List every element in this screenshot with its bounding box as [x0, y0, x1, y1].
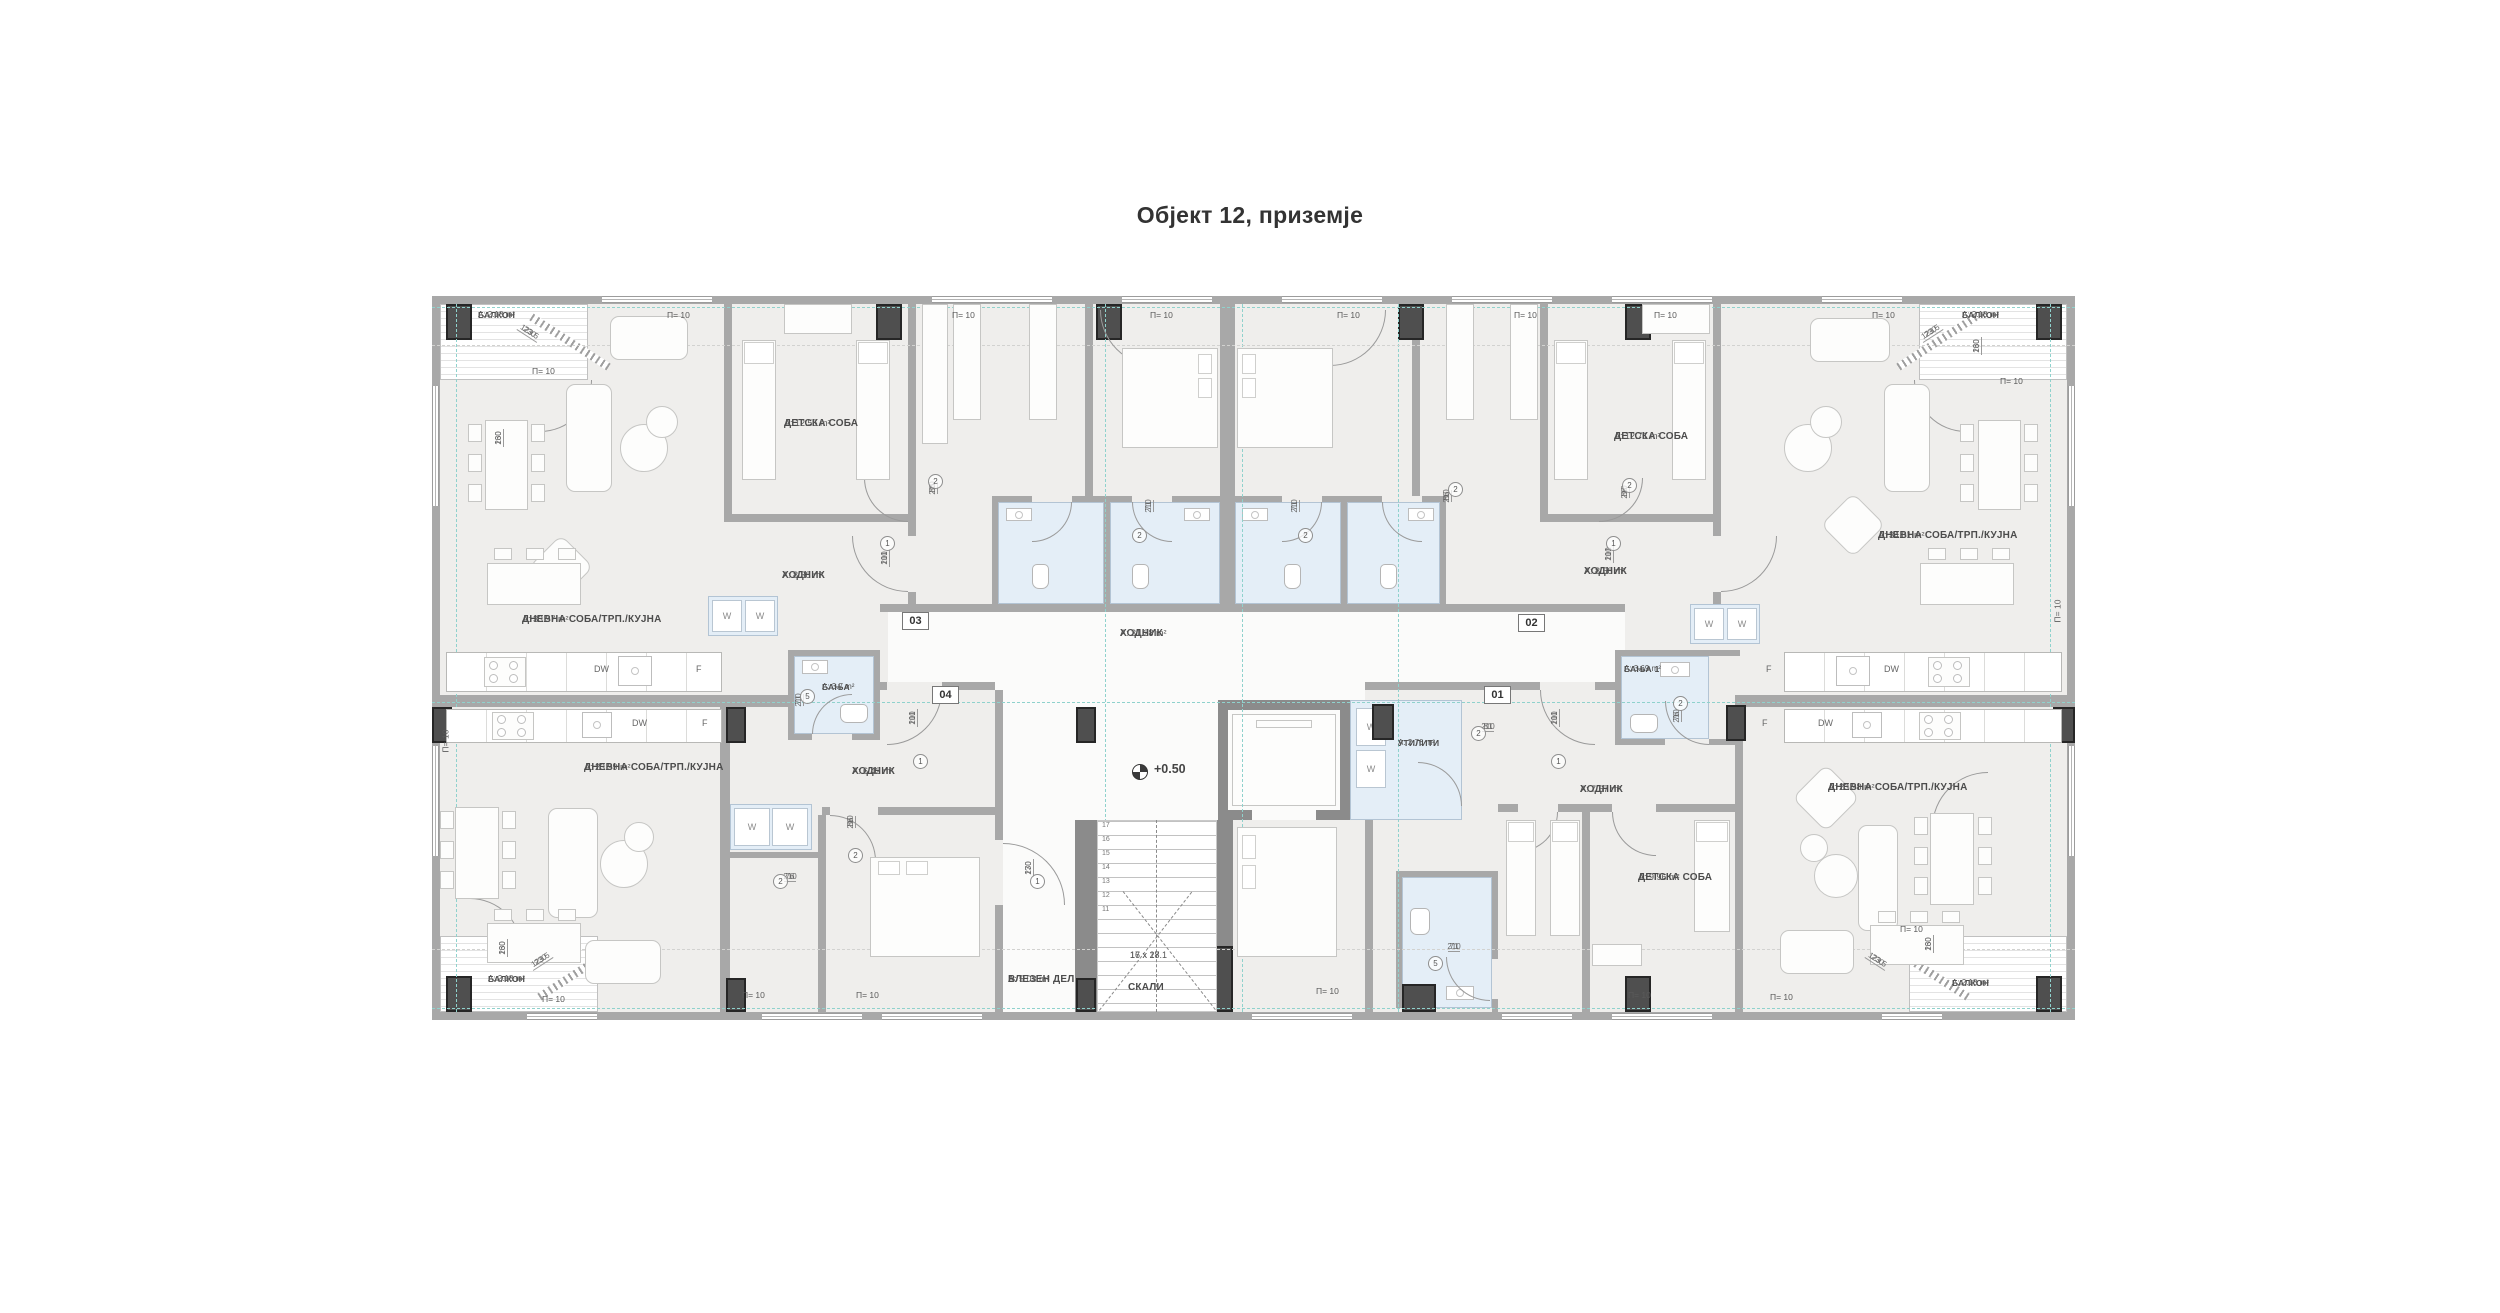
toilet: [1032, 564, 1049, 589]
unit-box-03: 03: [902, 612, 929, 630]
pillow: [1696, 822, 1728, 842]
wall: [1540, 514, 1721, 522]
stool: [1942, 911, 1960, 923]
stair-number: 17: [1102, 822, 1110, 829]
stove: [492, 712, 534, 740]
chair: [531, 484, 545, 502]
lounge-chair: [1792, 764, 1860, 832]
chair: [468, 424, 482, 442]
stool: [494, 909, 512, 921]
elevator-shaft-wall: [1316, 810, 1350, 820]
parapet-label: П= 10: [667, 310, 690, 320]
stair-number: 13: [1102, 878, 1110, 885]
window: [432, 386, 439, 506]
door-tag-5: 5: [800, 689, 815, 704]
stove: [1928, 657, 1970, 687]
sink: [802, 660, 828, 674]
room-label-stairs: СКАЛИ: [1128, 982, 1164, 993]
pillow: [1556, 342, 1586, 364]
door-arc: [1540, 690, 1595, 745]
kitchen-sink: [1836, 656, 1870, 686]
armchair: [1814, 854, 1858, 898]
ottoman: [1800, 834, 1828, 862]
column: [876, 304, 902, 340]
room-area: А: 3.7 m²: [822, 682, 854, 692]
room-area: А: 6.42 m²: [852, 766, 894, 777]
door-tag-5: 5: [1428, 956, 1443, 971]
chair: [1960, 424, 1974, 442]
room-area: А: 3.69 m²: [1624, 664, 1661, 674]
burner-icon: [1944, 728, 1953, 737]
column: [2036, 304, 2062, 340]
ottoman: [624, 822, 654, 852]
chair: [468, 484, 482, 502]
door-arc: [1612, 812, 1656, 856]
pillow: [1242, 354, 1256, 374]
room-area: А: 2.18 m²: [1952, 978, 1989, 988]
bed: [1510, 304, 1538, 420]
toilet: [1284, 564, 1301, 589]
kitchen-island: [487, 563, 581, 605]
column: [446, 304, 472, 340]
parapet-label: П= 10: [1316, 986, 1339, 996]
axis-line: [432, 1008, 2075, 1009]
stool: [526, 548, 544, 560]
washer: W: [734, 808, 770, 846]
washer: W: [1694, 608, 1724, 640]
kitchen-sink: [582, 712, 612, 738]
door-tag-2: 2: [1298, 528, 1313, 543]
bed: [953, 304, 981, 420]
main-corridor-floor: [888, 612, 1625, 682]
wall: [908, 304, 916, 536]
stair-number: 11: [1102, 906, 1109, 913]
sofa: [610, 316, 688, 360]
room-area: А: 33.97 m²: [522, 614, 569, 625]
floor-plan: W W W W W W W W: [432, 296, 2075, 1020]
pillow: [1198, 378, 1212, 398]
window: [762, 1013, 862, 1020]
fridge-label: F: [702, 718, 708, 728]
lounge-chair: [1820, 492, 1885, 557]
door-tag-2: 2: [1673, 696, 1688, 711]
wall: [1740, 695, 2075, 707]
column: [1076, 978, 1096, 1012]
sink: [1660, 662, 1690, 677]
chair: [1960, 454, 1974, 472]
room-area: А: 8.58 m²: [1584, 566, 1626, 577]
parapet-label: П= 10: [1150, 310, 1173, 320]
toilet: [1132, 564, 1149, 589]
window: [1282, 296, 1382, 303]
parapet-label: П= 10: [542, 994, 565, 1004]
sofa: [548, 808, 598, 918]
stair-number: 16: [1102, 836, 1110, 843]
parapet-label: П= 10: [440, 730, 450, 753]
wall: [1492, 999, 1498, 1012]
bed: [1446, 304, 1474, 420]
pillow: [878, 861, 900, 875]
dishwasher-label: DW: [1884, 664, 1899, 674]
column: [1726, 705, 1746, 741]
stair-tread-spec: 16 x 28: [1130, 950, 1160, 961]
door-tag-2: 2: [1622, 478, 1637, 493]
wall: [880, 604, 1625, 612]
chair: [1914, 817, 1928, 835]
burner-icon: [1933, 661, 1942, 670]
wall: [1590, 804, 1612, 812]
fridge-label: F: [1762, 718, 1768, 728]
pillow: [744, 342, 774, 364]
pillow: [1198, 354, 1212, 374]
pillow: [1242, 378, 1256, 398]
pillow: [1674, 342, 1704, 364]
washer: W: [772, 808, 808, 846]
ottoman: [646, 406, 678, 438]
window: [1612, 1013, 1712, 1020]
window: [2068, 386, 2075, 506]
room-area: А: 2.18 m²: [1962, 310, 1999, 320]
column: [1398, 304, 1424, 340]
chair: [1978, 847, 1992, 865]
washer: W: [1356, 750, 1386, 788]
wall: [1220, 304, 1235, 604]
wall: [1365, 820, 1373, 1012]
sofa: [1780, 930, 1854, 974]
burner-icon: [1944, 715, 1953, 724]
door-tag-2: 2: [928, 474, 943, 489]
dining-table: [1930, 813, 1974, 905]
stool: [494, 548, 512, 560]
chair: [440, 811, 454, 829]
sofa: [1884, 384, 1930, 492]
burner-icon: [509, 661, 518, 670]
stool: [1878, 911, 1896, 923]
washer: W: [712, 600, 742, 632]
stair-number: 15: [1102, 850, 1110, 857]
sink: [1242, 508, 1268, 521]
chair: [440, 841, 454, 859]
chair: [2024, 484, 2038, 502]
wall: [1085, 304, 1093, 496]
dishwasher-label: DW: [1818, 718, 1833, 728]
axis-line: [432, 702, 2075, 703]
wall: [720, 707, 730, 1012]
unit-box-01: 01: [1484, 686, 1511, 704]
kitchen-sink: [618, 656, 652, 686]
door-tag-1: 1: [913, 754, 928, 769]
room-area: А: 31.28 m²: [1120, 628, 1167, 639]
door-tag-1: 1: [1551, 754, 1566, 769]
room-area: А: 23.98 m²: [1828, 782, 1875, 793]
stair-number: 12: [1102, 892, 1110, 899]
stool: [1928, 548, 1946, 560]
window: [1452, 296, 1552, 303]
door-tag-2: 2: [848, 848, 863, 863]
dishwasher-label: DW: [594, 664, 609, 674]
window: [602, 296, 712, 303]
chair: [468, 454, 482, 472]
door-tag-1: 1: [1606, 536, 1621, 551]
parapet-label: П= 10: [1514, 310, 1537, 320]
stool: [526, 909, 544, 921]
toilet: [1410, 908, 1430, 935]
parapet-label: П= 10: [856, 990, 879, 1000]
elevator-shaft-wall: [1218, 700, 1228, 820]
wall: [1540, 304, 1548, 522]
wall: [874, 650, 880, 740]
pillow: [1242, 835, 1256, 859]
wall: [818, 815, 826, 1012]
wall: [995, 690, 1003, 840]
washer: W: [745, 600, 775, 632]
burner-icon: [517, 728, 526, 737]
wall: [1656, 804, 1743, 812]
fridge-label: F: [696, 664, 702, 674]
parapet-label: П= 10: [742, 990, 765, 1000]
window: [1822, 296, 1902, 303]
chair: [2024, 424, 2038, 442]
elevator-car-rail: [1256, 720, 1312, 728]
column: [726, 707, 746, 743]
door-tag-2: 2: [1132, 528, 1147, 543]
room-area: А: 9.96 m²: [1638, 872, 1680, 883]
wall: [432, 695, 788, 707]
room-area: А: 5.03 m²: [1008, 974, 1050, 985]
wardrobe: [784, 304, 852, 334]
stool: [1910, 911, 1928, 923]
wall: [724, 304, 732, 522]
wall: [1558, 804, 1590, 812]
room-area: А: 23.99 m²: [584, 762, 631, 773]
window: [932, 296, 1052, 303]
door-tag-2: 2: [1448, 482, 1463, 497]
burner-icon: [1953, 674, 1962, 683]
wall: [1492, 871, 1498, 959]
axis-line: [1398, 304, 1399, 1012]
unit-box-02: 02: [1518, 614, 1545, 632]
wall: [1498, 804, 1518, 812]
chair: [2024, 454, 2038, 472]
wall: [1615, 739, 1665, 745]
ottoman: [1810, 406, 1842, 438]
burner-icon: [509, 674, 518, 683]
burner-icon: [497, 728, 506, 737]
fridge-label: F: [1766, 664, 1772, 674]
parapet-label: П= 10: [952, 310, 975, 320]
chair: [1914, 847, 1928, 865]
column: [446, 976, 472, 1012]
pillow: [1508, 822, 1534, 842]
stool: [558, 548, 576, 560]
wall: [852, 734, 880, 740]
burner-icon: [517, 715, 526, 724]
chair: [502, 811, 516, 829]
kitchen-island: [1920, 563, 2014, 605]
sofa: [585, 940, 661, 984]
chair: [440, 871, 454, 889]
sink: [1006, 508, 1032, 521]
parapet-label: П= 10: [2000, 376, 2023, 386]
door-tag-1: 1: [880, 536, 895, 551]
pillow: [858, 342, 888, 364]
dining-table: [455, 807, 499, 899]
burner-icon: [1953, 661, 1962, 670]
parapet-label: П= 10: [1654, 310, 1677, 320]
parapet-label: П= 10: [1628, 990, 1651, 1000]
window: [1252, 1013, 1352, 1020]
parapet-label: П= 10: [1337, 310, 1360, 320]
sofa: [566, 384, 612, 492]
burner-icon: [489, 661, 498, 670]
wall: [788, 734, 812, 740]
dishwasher-label: DW: [632, 718, 647, 728]
wall: [1365, 682, 1540, 690]
room-area: А: 2.76 m²: [1398, 738, 1435, 748]
chair: [1914, 877, 1928, 895]
washer: W: [1727, 608, 1757, 640]
wall: [878, 807, 995, 815]
column: [1372, 704, 1394, 740]
window: [527, 1013, 597, 1020]
dining-table: [485, 420, 528, 510]
window: [1122, 296, 1212, 303]
window: [432, 746, 439, 856]
burner-icon: [497, 715, 506, 724]
window: [1612, 296, 1712, 303]
room-area: А: 8.38 m²: [782, 570, 824, 581]
chair: [502, 841, 516, 859]
wall: [728, 852, 818, 858]
parapet-label: П= 10: [532, 366, 555, 376]
elevation-value: +0.50: [1154, 762, 1186, 776]
burner-icon: [1924, 715, 1933, 724]
wall: [822, 807, 830, 815]
wall: [1582, 812, 1590, 1012]
elevator-shaft-wall: [1340, 700, 1350, 820]
sink: [1184, 508, 1210, 521]
window: [2068, 746, 2075, 856]
wall: [1440, 496, 1446, 610]
window: [882, 1013, 982, 1020]
chair: [502, 871, 516, 889]
kitchen-sink: [1852, 712, 1882, 738]
stove: [484, 657, 526, 687]
chair: [1960, 484, 1974, 502]
chair: [531, 424, 545, 442]
toilet: [1380, 564, 1397, 589]
room-area: А: 12.55 m²: [784, 418, 831, 429]
room-area: А: 34.01 m²: [1878, 530, 1925, 541]
burner-icon: [1933, 674, 1942, 683]
room-area: А: 2.18 m²: [488, 974, 525, 984]
parapet-label: П= 10: [1900, 924, 1923, 934]
stair-number: 14: [1102, 864, 1110, 871]
elevator-shaft-wall: [1218, 810, 1252, 820]
elevation-marker-icon: [1132, 764, 1148, 780]
wall: [1713, 304, 1721, 536]
pillow: [1552, 822, 1578, 842]
chair: [1978, 877, 1992, 895]
chair: [531, 454, 545, 472]
door-arc: [1721, 536, 1777, 592]
room-area: А: 12.71 m²: [1614, 431, 1661, 442]
pillow: [906, 861, 928, 875]
axis-line: [432, 307, 2075, 308]
room-area: А: 7.67 m²: [1580, 784, 1622, 795]
stool: [1992, 548, 2010, 560]
door-tag-2: 2: [773, 874, 788, 889]
stool: [1960, 548, 1978, 560]
dining-table: [1978, 420, 2021, 510]
page-title: Објект 12, приземје: [0, 202, 2500, 229]
wardrobe: [1592, 944, 1642, 966]
burner-icon: [489, 674, 498, 683]
parapet-label: П= 10: [1872, 310, 1895, 320]
column: [1076, 707, 1096, 743]
toilet: [1630, 714, 1658, 733]
parapet-label: П= 10: [2052, 600, 2062, 623]
wall: [995, 905, 1003, 1012]
column: [2036, 976, 2062, 1012]
wall: [880, 682, 887, 690]
sofa: [1810, 318, 1890, 362]
parapet-label: П= 10: [1770, 992, 1793, 1002]
door-tag-1: 1: [1030, 874, 1045, 889]
burner-icon: [1924, 728, 1933, 737]
pillow: [1242, 865, 1256, 889]
chair: [1978, 817, 1992, 835]
stove: [1919, 712, 1961, 740]
stool: [558, 909, 576, 921]
window: [1882, 1013, 1942, 1020]
room-area: А: 2.18 m²: [478, 310, 515, 320]
wardrobe: [922, 304, 948, 444]
kitchen-counter: [1784, 652, 2062, 692]
window: [1502, 1013, 1572, 1020]
door-tag-2: 2: [1471, 726, 1486, 741]
unit-box-04: 04: [932, 686, 959, 704]
bed: [1029, 304, 1057, 420]
